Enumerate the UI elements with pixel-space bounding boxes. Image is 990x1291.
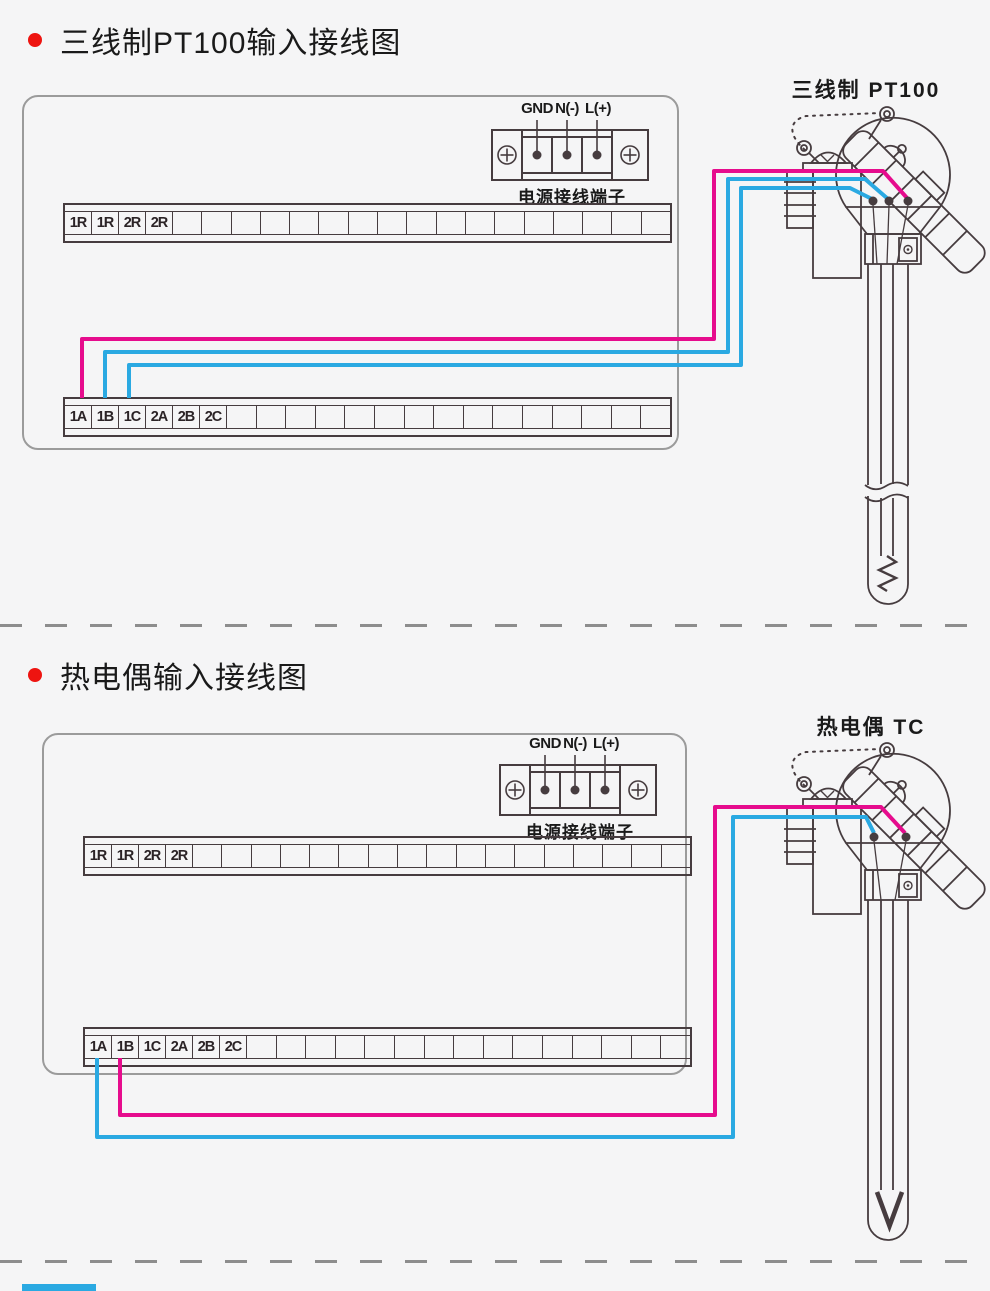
cap-holder-dome <box>803 153 852 171</box>
terminal-cell-empty <box>290 212 319 234</box>
terminal-cell-empty <box>425 1036 455 1058</box>
power-label-l: L(+) <box>585 100 611 117</box>
terminal-cell-empty <box>545 845 574 867</box>
clamp-block <box>865 234 921 264</box>
terminal-cell-empty <box>316 406 346 428</box>
terminal-cell-empty <box>457 845 486 867</box>
terminal-cell: 2A <box>166 1036 193 1058</box>
terminal-cell-empty <box>641 406 670 428</box>
head-side-block <box>813 170 861 278</box>
red-bullet-icon <box>28 668 42 682</box>
terminal-cell-empty <box>281 845 310 867</box>
terminal-cell-empty <box>437 212 466 234</box>
terminal-cell-empty <box>582 406 612 428</box>
terminal-cell: 2R <box>139 845 166 867</box>
terminal-cell-empty <box>227 406 257 428</box>
terminal-cell-empty <box>612 406 642 428</box>
terminal-cell-empty <box>583 212 612 234</box>
clamp-block <box>865 870 921 900</box>
cropped-blue-element <box>22 1284 96 1291</box>
terminal-cell-empty <box>306 1036 336 1058</box>
terminal-cell: 1R <box>112 845 139 867</box>
power-label-n: N(-) <box>555 100 579 117</box>
sensor-label-pt100: 三线制 PT100 <box>758 74 974 104</box>
terminal-cell-empty <box>573 1036 603 1058</box>
terminal-cell-empty <box>434 406 464 428</box>
chain-dotted-line <box>792 113 880 150</box>
terminal-cell-empty <box>261 212 290 234</box>
terminal-cell: 1C <box>139 1036 166 1058</box>
eyelet-screw-icon <box>869 743 894 775</box>
section-separator-dashed <box>0 624 990 627</box>
terminal-cell: 2C <box>200 406 227 428</box>
terminal-cell-empty <box>365 1036 395 1058</box>
terminal-cell-empty <box>554 212 583 234</box>
terminal-cell-empty <box>603 845 632 867</box>
eyelet-screw-icon <box>797 141 819 163</box>
terminal-cell-empty <box>232 212 261 234</box>
sensor-head <box>836 118 950 207</box>
terminal-cell-empty <box>395 1036 425 1058</box>
neck-funnel <box>846 843 940 870</box>
terminal-cell: 2A <box>146 406 173 428</box>
terminal-cell-empty <box>642 212 670 234</box>
terminal-cell-empty <box>286 406 316 428</box>
terminal-cell-empty <box>247 1036 277 1058</box>
section-title: 三线制PT100输入接线图 <box>60 18 401 62</box>
terminal-cell-empty <box>375 406 405 428</box>
terminal-cell-empty <box>277 1036 307 1058</box>
terminal-cell: 2B <box>173 406 200 428</box>
terminal-cell-empty <box>319 212 348 234</box>
terminal-cell: 1B <box>92 406 119 428</box>
terminal-cell-empty <box>553 406 583 428</box>
section-title: 热电偶输入接线图 <box>60 653 308 697</box>
eyelet-screw-icon <box>869 107 894 139</box>
terminal-cell: 1R <box>92 212 119 234</box>
terminal-strip-lower: 1A1B1C2A2B2C <box>83 1027 692 1067</box>
terminal-cell-empty <box>398 845 427 867</box>
terminal-cell-empty <box>378 212 407 234</box>
panel-enclosure <box>42 733 687 1075</box>
terminal-cell-empty <box>466 212 495 234</box>
terminal-cell-empty <box>513 1036 543 1058</box>
screw-cap <box>839 116 990 277</box>
terminal-cell-empty <box>349 212 378 234</box>
terminal-strip-lower: 1A1B1C2A2B2C <box>63 397 672 437</box>
red-bullet-icon <box>28 33 42 47</box>
neck-funnel <box>846 207 940 234</box>
terminal-cell-empty <box>662 845 690 867</box>
terminal-cell-empty <box>257 406 287 428</box>
terminal-strip-upper: 1R1R2R2R <box>83 836 692 876</box>
sensor-head <box>836 754 950 843</box>
eyelet-screw-icon <box>797 777 819 799</box>
terminal-cell: 2R <box>146 212 173 234</box>
terminal-cell-empty <box>525 212 554 234</box>
power-label-l: L(+) <box>593 735 619 752</box>
terminal-cell: 2C <box>220 1036 247 1058</box>
section1-header: 三线制PT100输入接线图 <box>28 18 401 62</box>
terminal-cell: 1A <box>65 406 92 428</box>
terminal-cell: 1R <box>85 845 112 867</box>
terminal-cell-empty <box>336 1036 366 1058</box>
wiring-diagram-page: 三线制PT100输入接线图 GND N(-) L(+) 电源接线端子 1R1R2… <box>0 0 990 1291</box>
rtd-element-icon <box>879 556 896 591</box>
head-side-block <box>813 806 861 914</box>
terminal-cell-empty <box>427 845 456 867</box>
sensor-label-tc: 热电偶 TC <box>766 711 976 741</box>
terminal-strip-upper: 1R1R2R2R <box>63 203 672 243</box>
terminal-cell-empty <box>515 845 544 867</box>
threaded-bushing <box>784 170 816 228</box>
screw-cap <box>839 752 990 913</box>
terminal-cell-empty <box>464 406 494 428</box>
terminal-cell-empty <box>602 1036 632 1058</box>
terminal-cell-empty <box>173 212 202 234</box>
terminal-cell-empty <box>369 845 398 867</box>
section-separator-dashed <box>0 1260 990 1263</box>
terminal-cell: 1R <box>65 212 92 234</box>
terminal-cell-empty <box>405 406 435 428</box>
power-label-gnd: GND <box>529 735 561 752</box>
probe-tube <box>868 900 908 1240</box>
terminal-cell-empty <box>252 845 281 867</box>
terminal-cell-empty <box>486 845 515 867</box>
terminal-cell-empty <box>484 1036 514 1058</box>
terminal-cell: 2B <box>193 1036 220 1058</box>
terminal-cell-empty <box>632 1036 662 1058</box>
probe-tube <box>862 264 914 604</box>
terminal-cell: 1A <box>85 1036 112 1058</box>
terminal-cell: 2R <box>119 212 146 234</box>
tc-sensor-drawing <box>784 743 990 1240</box>
thermocouple-junction-icon <box>877 1192 902 1226</box>
terminal-cell: 2R <box>166 845 193 867</box>
power-label-n: N(-) <box>563 735 587 752</box>
terminal-cell-empty <box>612 212 641 234</box>
terminal-cell-empty <box>543 1036 573 1058</box>
terminal-cell: 1C <box>119 406 146 428</box>
sensor-terminal-dots <box>870 833 911 842</box>
cap-holder-dome <box>803 789 852 807</box>
terminal-cell-empty <box>202 212 231 234</box>
terminal-cell-empty <box>632 845 661 867</box>
sensor-terminal-dots <box>869 197 913 206</box>
terminal-cell: 1B <box>112 1036 139 1058</box>
terminal-cell-empty <box>193 845 222 867</box>
terminal-cell-empty <box>661 1036 690 1058</box>
chain-dotted-line <box>792 749 880 786</box>
pt100-sensor-drawing <box>784 107 990 604</box>
terminal-cell-empty <box>493 406 523 428</box>
terminal-cell-empty <box>345 406 375 428</box>
terminal-cell-empty <box>574 845 603 867</box>
terminal-cell-empty <box>339 845 368 867</box>
terminal-cell-empty <box>495 212 524 234</box>
terminal-cell-empty <box>310 845 339 867</box>
section2-header: 热电偶输入接线图 <box>28 653 308 697</box>
terminal-cell-empty <box>454 1036 484 1058</box>
terminal-cell-empty <box>222 845 251 867</box>
terminal-cell-empty <box>407 212 436 234</box>
threaded-bushing <box>784 806 816 864</box>
terminal-cell-empty <box>523 406 553 428</box>
power-label-gnd: GND <box>521 100 553 117</box>
